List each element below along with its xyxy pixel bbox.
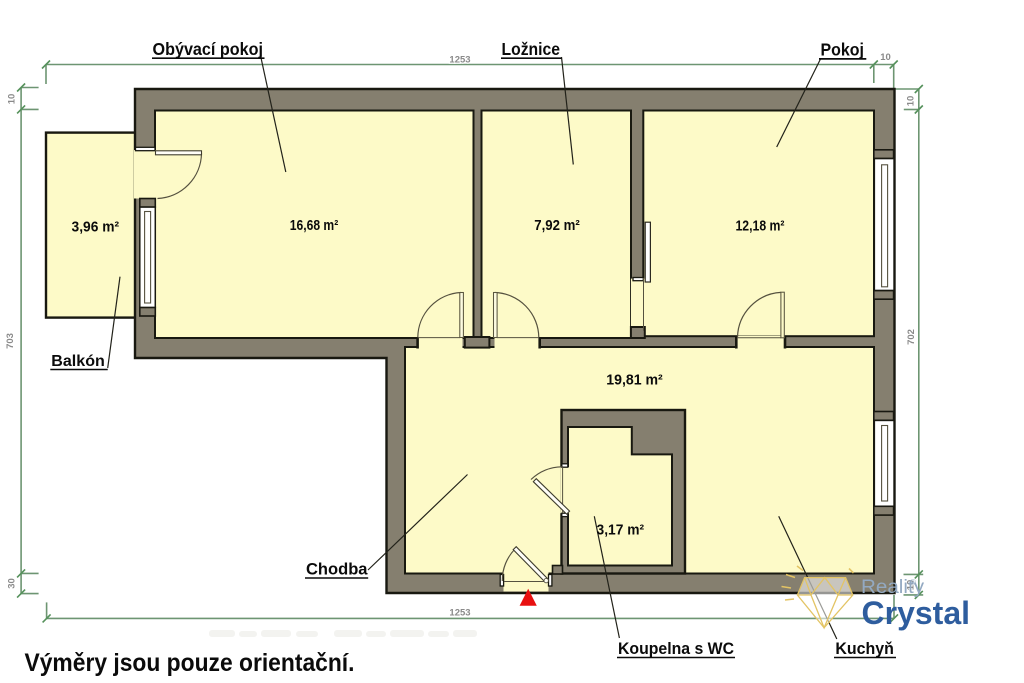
svg-text:Crystal: Crystal	[862, 595, 971, 631]
svg-text:1253: 1253	[449, 55, 470, 66]
svg-text:16,68 m²: 16,68 m²	[290, 218, 339, 234]
svg-text:Koupelna s WC: Koupelna s WC	[618, 640, 734, 658]
svg-text:10: 10	[880, 52, 891, 63]
svg-text:3,96 m²: 3,96 m²	[72, 220, 120, 236]
svg-text:Kuchyň: Kuchyň	[835, 640, 894, 658]
svg-text:30: 30	[7, 578, 18, 589]
svg-text:Pokoj: Pokoj	[821, 40, 865, 60]
svg-text:10: 10	[7, 94, 18, 105]
svg-text:703: 703	[5, 333, 16, 349]
svg-text:Výměry jsou pouze orientační.: Výměry jsou pouze orientační.	[25, 649, 355, 677]
svg-text:®: ®	[910, 578, 916, 587]
svg-text:7,92 m²: 7,92 m²	[534, 218, 580, 234]
svg-text:1253: 1253	[449, 608, 470, 619]
svg-text:12,18 m²: 12,18 m²	[736, 219, 785, 235]
svg-text:Chodba: Chodba	[306, 561, 368, 579]
svg-text:19,81 m²: 19,81 m²	[606, 373, 663, 389]
svg-text:Ložnice: Ložnice	[502, 39, 561, 59]
svg-text:10: 10	[906, 96, 917, 107]
svg-text:3,17 m²: 3,17 m²	[597, 523, 645, 539]
svg-text:702: 702	[906, 329, 917, 345]
svg-text:Balkón: Balkón	[51, 353, 105, 370]
svg-text:Obývací pokoj: Obývací pokoj	[153, 39, 264, 59]
